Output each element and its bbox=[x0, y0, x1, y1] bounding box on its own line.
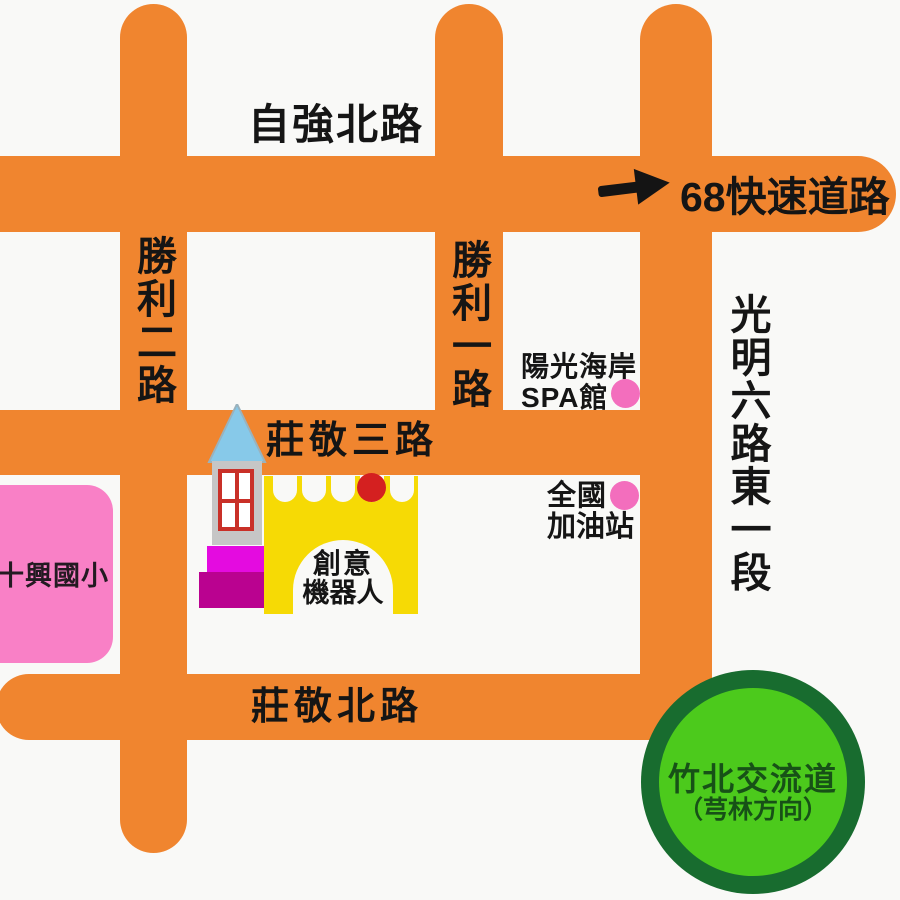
castle-block-magenta bbox=[207, 546, 266, 572]
castle-block-purple bbox=[199, 572, 266, 608]
castle-tower-window bbox=[218, 469, 254, 531]
road-guangming-6 bbox=[640, 4, 712, 740]
road-label-zhuangjing-3: 莊敬三路 bbox=[266, 422, 438, 462]
road-label-shengli-1: 勝利一路 bbox=[447, 239, 489, 411]
map-canvas: 自強北路 68快速道路 勝利二路 勝利一路 光明六路東一段 莊敬三路 莊敬北路 … bbox=[0, 0, 900, 900]
window-mullion-horizontal bbox=[222, 499, 250, 503]
school-label: 十興國小 bbox=[0, 562, 109, 590]
interchange-label-line2: （芎林方向） bbox=[641, 790, 865, 826]
pink-dot-marker-gas bbox=[610, 481, 639, 510]
castle-crenellation-notch bbox=[390, 476, 414, 502]
red-dot-marker bbox=[357, 473, 386, 502]
castle-crenellation-notch bbox=[302, 476, 326, 502]
gas-label-line1: 全國 bbox=[547, 481, 607, 511]
road-label-guangming-6: 光明六路東一段 bbox=[725, 293, 768, 594]
robot-label-line2: 機器人 bbox=[283, 579, 403, 607]
arrow-right-icon bbox=[596, 163, 672, 211]
interchange-circle: 竹北交流道 （芎林方向） bbox=[641, 670, 865, 894]
road-label-zhuangjing-north: 莊敬北路 bbox=[251, 688, 423, 728]
road-label-shengli-2: 勝利二路 bbox=[132, 235, 174, 407]
pink-dot-marker-spa bbox=[611, 379, 640, 408]
road-label-expressway-68: 68快速道路 bbox=[680, 176, 890, 219]
castle-spire-icon bbox=[205, 404, 267, 464]
castle-crenellation-notch bbox=[331, 476, 355, 502]
spa-label-line1: 陽光海岸 bbox=[521, 352, 637, 381]
road-label-zihqiang-north: 自強北路 bbox=[248, 103, 424, 147]
gas-label-line2: 加油站 bbox=[547, 512, 634, 542]
spa-label-line2: SPA館 bbox=[521, 383, 609, 412]
castle-crenellation-notch bbox=[273, 476, 297, 502]
robot-label-line1: 創意 bbox=[283, 549, 403, 578]
